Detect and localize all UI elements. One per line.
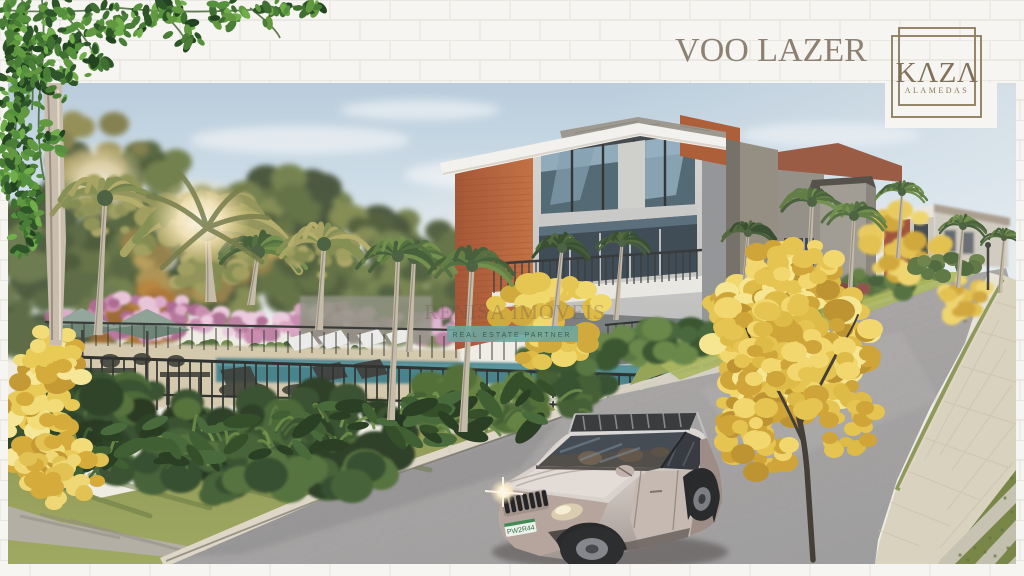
svg-text:VOO LAZER: VOO LAZER <box>675 32 867 69</box>
svg-text:ALAMEDAS: ALAMEDAS <box>905 86 969 95</box>
svg-text:KΛZΛ: KΛZΛ <box>896 57 979 89</box>
